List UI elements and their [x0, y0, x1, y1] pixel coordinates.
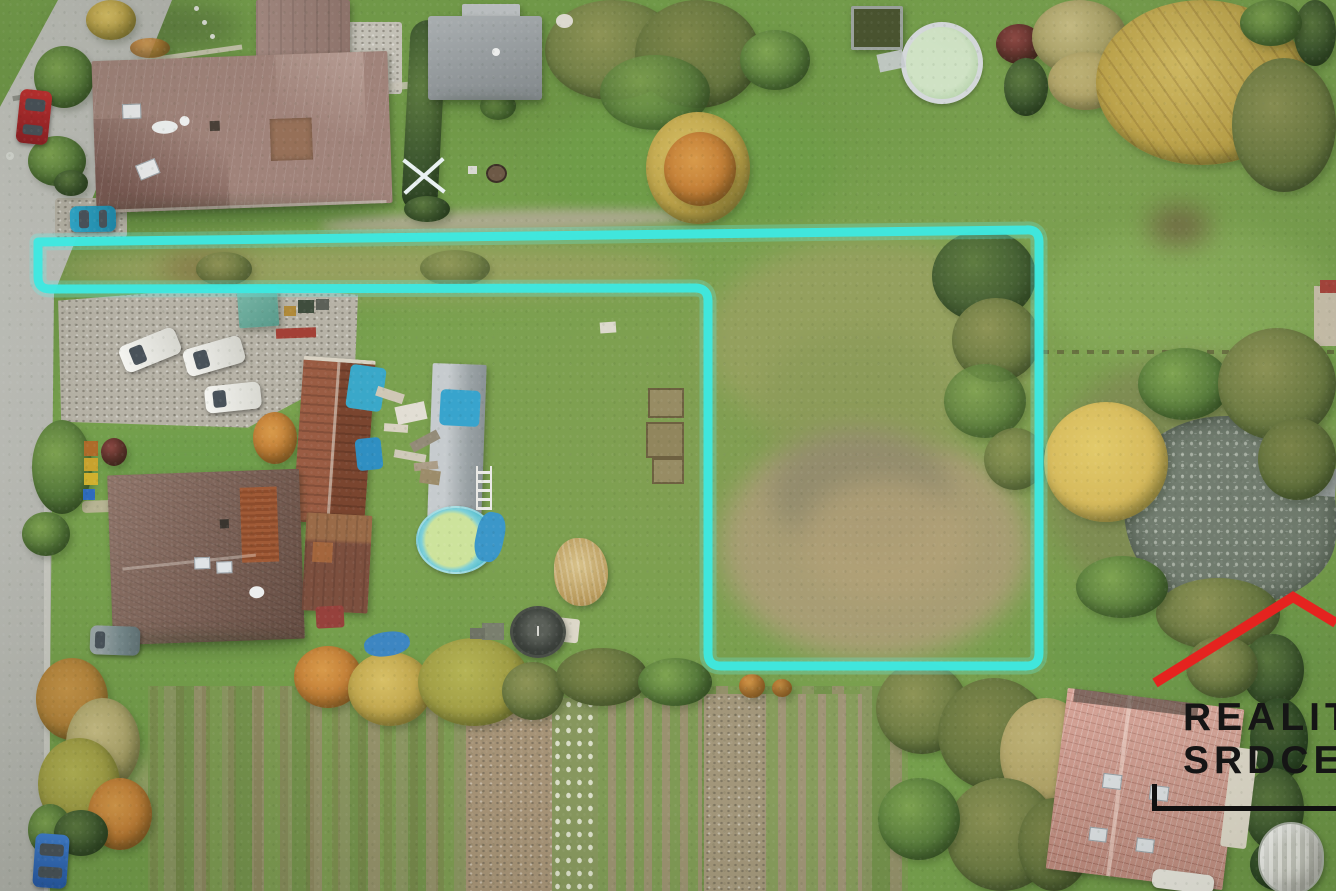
stepping-stone	[210, 34, 215, 39]
garden-shed	[851, 6, 903, 50]
garden-bench	[482, 623, 504, 640]
garden-rows-mid	[598, 698, 702, 891]
fire-pit	[486, 164, 507, 183]
tree	[1294, 0, 1336, 66]
orange-flowerbed	[130, 38, 170, 58]
roof-ridge	[326, 362, 340, 524]
brown-house-roof	[107, 469, 305, 646]
brown-house-shadow	[118, 636, 308, 650]
animal-pen	[648, 388, 684, 418]
blue-car	[32, 833, 70, 889]
white-object	[468, 166, 477, 174]
blue-tarp	[439, 389, 481, 427]
house-a-shadow	[100, 204, 392, 218]
water-tank	[1258, 822, 1324, 891]
orange-shrub	[739, 674, 765, 698]
bare-soil-strip-2	[704, 694, 766, 891]
stepping-stone	[194, 6, 199, 11]
pond-bush	[1076, 556, 1168, 618]
gray-van	[90, 625, 141, 656]
hedgerow-bush	[556, 648, 648, 706]
roof-vent	[210, 121, 220, 131]
golden-tree-pond	[1044, 402, 1168, 522]
trampoline	[510, 606, 566, 658]
garden-rows-right	[766, 694, 862, 891]
tree	[1240, 0, 1302, 46]
rust-roof-panel	[240, 486, 279, 562]
tree	[740, 30, 810, 90]
white-box	[600, 321, 617, 333]
red-work-table	[276, 327, 316, 338]
green-bin	[298, 300, 314, 313]
trampoline-mark	[537, 626, 539, 636]
stepping-stone	[202, 20, 207, 25]
watermark-text-1-clipped: T	[1325, 696, 1336, 739]
pond-bush	[1138, 348, 1230, 420]
roof-seams	[91, 51, 392, 213]
blue-tarp	[354, 437, 383, 472]
skylight	[1088, 826, 1108, 842]
skylight	[122, 104, 142, 120]
hedge-corner	[404, 196, 450, 222]
olive-trees	[1232, 58, 1336, 192]
watermark-line-1: REALIT	[1183, 698, 1336, 738]
manhole-cover	[6, 152, 14, 160]
aerial-photo: REALIT SRDCE	[0, 0, 1336, 891]
autumn-bush	[253, 412, 297, 464]
beehive	[83, 489, 95, 500]
plot-bare-center	[800, 480, 970, 600]
chimney	[220, 519, 229, 528]
garden-table	[556, 14, 573, 28]
small-table	[470, 628, 485, 639]
bush	[1004, 58, 1048, 116]
red-sandbox	[315, 605, 344, 628]
bare-soil-strip-1	[466, 698, 552, 891]
orange-shrub	[772, 679, 792, 697]
beehive	[84, 441, 98, 456]
house-a-roof	[91, 51, 392, 213]
hedgerow-bush	[502, 662, 564, 720]
pond-trees	[1258, 418, 1336, 500]
yellow-bush	[86, 0, 136, 40]
satellite-dish	[249, 586, 264, 599]
barn-roof	[301, 512, 372, 613]
beehive	[84, 458, 98, 471]
bush	[54, 170, 88, 196]
roadside-tree	[22, 512, 70, 556]
junk-board	[384, 423, 408, 433]
white-table-junk	[394, 401, 427, 425]
junk-board	[394, 449, 427, 462]
hedgerow-bush	[638, 658, 712, 706]
watermark-text-2: SRDCE	[1183, 739, 1336, 782]
bush	[1186, 636, 1258, 698]
autumn-tree-core	[664, 132, 736, 206]
edge-red-roof	[1320, 280, 1336, 293]
red-bush	[101, 438, 127, 466]
strip-bush	[420, 250, 490, 286]
twiggy-bush	[1148, 206, 1210, 246]
gray-crate	[316, 299, 329, 310]
edge-shed	[1314, 286, 1336, 346]
skylight	[194, 557, 210, 570]
gray-house-roof	[428, 16, 542, 100]
beehive	[84, 473, 98, 485]
watermark-line-2: SRDCE	[1183, 741, 1336, 781]
roof-terrace	[270, 118, 313, 161]
pallet	[419, 469, 441, 486]
strip-bush	[196, 252, 252, 286]
hay-pile	[554, 538, 608, 606]
skylight	[1136, 838, 1156, 854]
logo-wall-line-horizontal	[1152, 806, 1336, 811]
skylight	[1102, 773, 1123, 790]
round-pool	[901, 22, 983, 104]
cabbage-row	[552, 698, 598, 891]
teal-canopy	[237, 286, 280, 329]
animal-pen	[646, 422, 684, 458]
plot-bush	[984, 428, 1046, 490]
rust-streak	[312, 542, 333, 563]
skylight	[216, 561, 232, 574]
teal-car	[70, 206, 116, 233]
watermark-text-1: REALI	[1183, 696, 1325, 739]
ladder	[476, 466, 492, 510]
wood-crate	[284, 306, 296, 316]
orchard-tree	[878, 778, 960, 860]
dry-grass-strip	[50, 243, 690, 295]
red-car	[15, 88, 52, 145]
plot-bush-cluster	[944, 364, 1026, 438]
animal-pen	[652, 458, 684, 484]
chimney	[492, 48, 500, 56]
gray-house-shadow	[432, 98, 544, 108]
ridge-line	[122, 554, 256, 571]
